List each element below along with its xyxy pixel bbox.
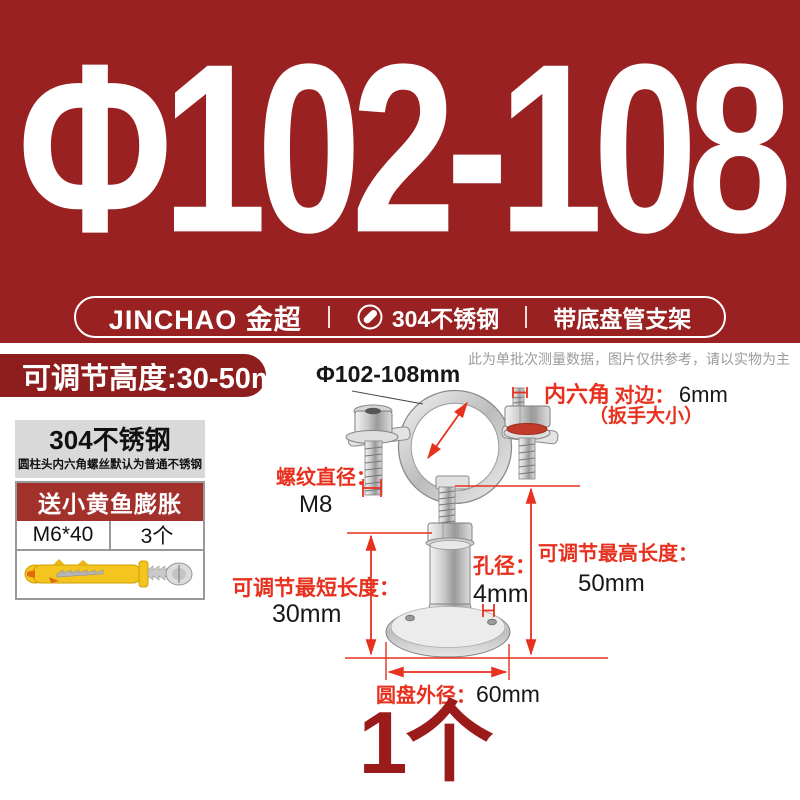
max-length-label: 可调节最高长度：	[538, 543, 698, 565]
brand-logo: JINCHAO 金超	[109, 298, 302, 337]
thread-value: M8	[299, 492, 332, 518]
material-note: 圆柱头内六角螺丝默认为普通不锈钢	[18, 456, 202, 472]
hex-annotation: 内六角 对边： 6mm	[544, 383, 728, 407]
hex-value: 6mm	[679, 382, 728, 407]
hex-label: 内六角	[544, 382, 610, 407]
disclaimer-text: 此为单批次测量数据，图片仅供参考，请以实物为主	[468, 349, 790, 369]
adjustable-height-pill: 可调节高度:30-50mm	[0, 354, 266, 397]
material-box: 304不锈钢 圆柱头内六角螺丝默认为普通不锈钢	[15, 420, 205, 478]
brand-banner: JINCHAO 金超 304不锈钢 带底盘管支架	[74, 296, 726, 338]
hole-value: 4mm	[473, 581, 529, 609]
divider	[525, 306, 527, 328]
wall-anchor-icon	[19, 553, 201, 595]
min-length-label: 可调节最短长度：	[232, 577, 400, 600]
divider	[328, 306, 330, 328]
hex-note: （扳手大小）	[589, 407, 703, 428]
hole-label: 孔径：	[473, 555, 536, 578]
gift-box: 送小黄鱼膨胀 M6*40 3个	[15, 481, 205, 600]
product-card: Φ102-108 JINCHAO 金超 304不锈钢 带底盘管支架 可调节高度:…	[0, 0, 800, 800]
screw-icon	[356, 303, 384, 331]
gift-spec-cell: M6*40	[17, 521, 111, 549]
material-badge: 304不锈钢	[356, 300, 499, 334]
diameter-label: Φ102-108mm	[316, 362, 460, 387]
min-length-value: 30mm	[272, 601, 341, 629]
page-title: Φ102-108	[0, 0, 800, 298]
quantity-label: 1个	[300, 697, 550, 789]
gift-header: 送小黄鱼膨胀	[17, 483, 203, 521]
hero-section: Φ102-108 JINCHAO 金超 304不锈钢 带底盘管支架	[0, 0, 800, 343]
gift-qty-cell: 3个	[111, 521, 203, 549]
product-type-label: 带底盘管支架	[553, 300, 691, 334]
anchor-image	[17, 551, 203, 596]
thread-label: 螺纹直径：	[276, 467, 376, 489]
hex-side-label: 对边：	[614, 385, 674, 407]
max-length-value: 50mm	[578, 571, 645, 597]
gift-spec-row: M6*40 3个	[17, 521, 203, 551]
material-badge-label: 304不锈钢	[392, 300, 499, 334]
material-title: 304不锈钢	[49, 426, 170, 455]
